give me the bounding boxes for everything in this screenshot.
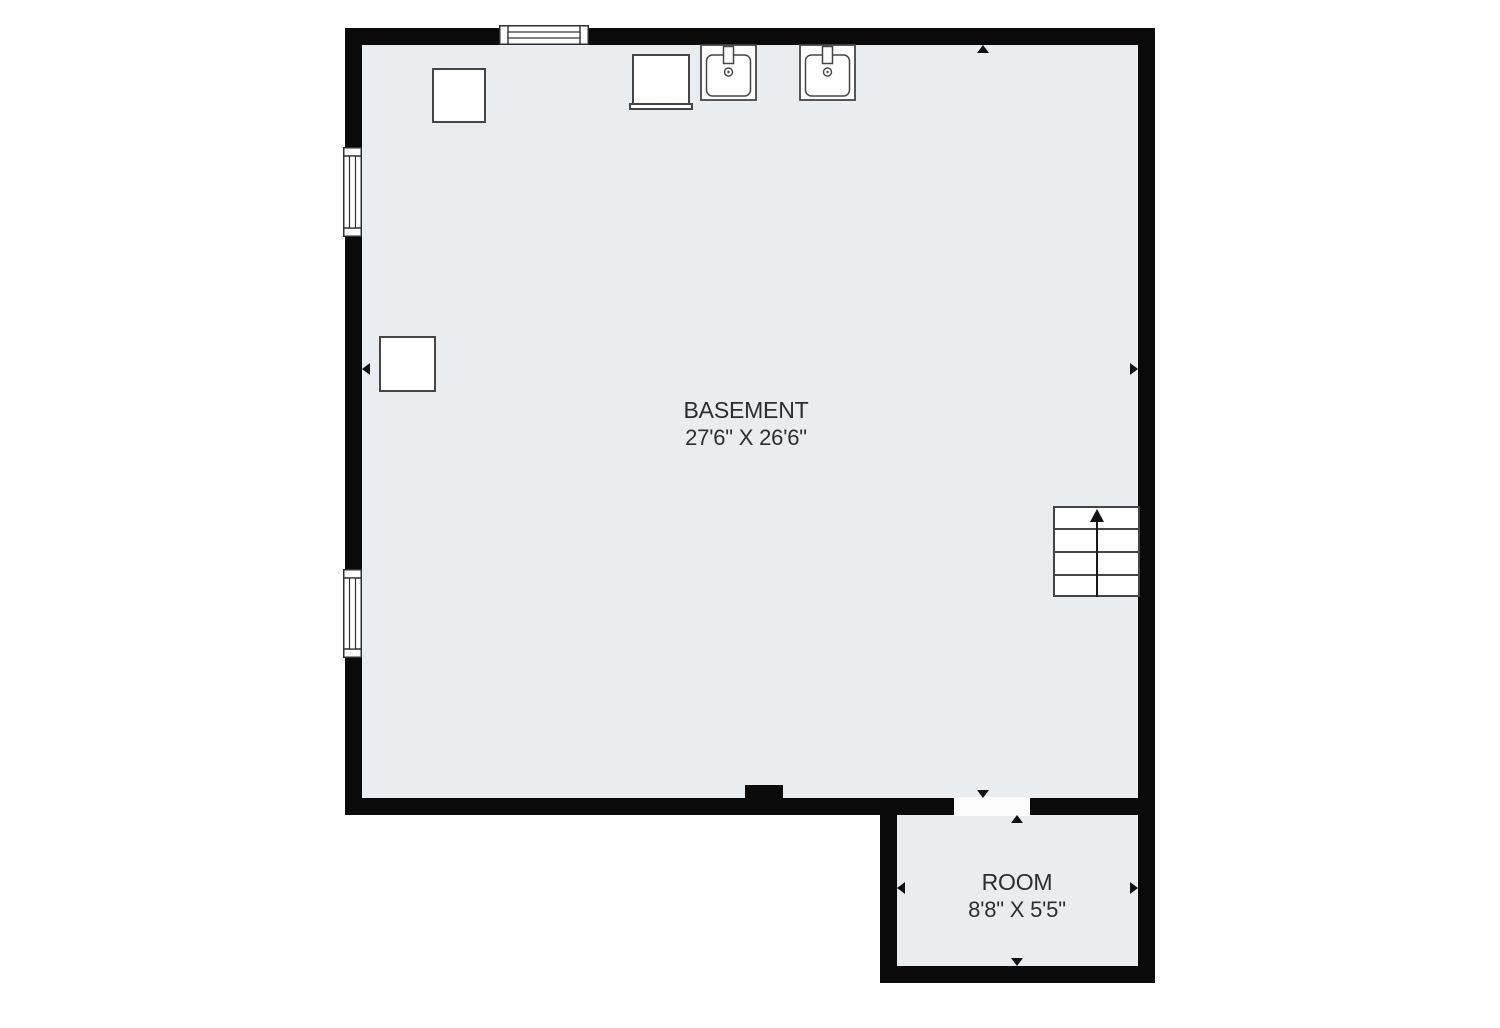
window-glyph bbox=[499, 25, 589, 45]
floor-plan: BASEMENT 27'6" X 26'6" ROOM 8'8" X 5'5" bbox=[0, 0, 1500, 1028]
room-name: ROOM bbox=[968, 868, 1066, 896]
wall-marker-up-icon bbox=[977, 45, 989, 53]
sink-glyph bbox=[799, 44, 856, 101]
door-marker-up-icon bbox=[1011, 815, 1023, 823]
door-opening bbox=[954, 797, 1030, 816]
staircase bbox=[1053, 506, 1140, 597]
wall-marker-right-icon bbox=[1130, 363, 1138, 375]
door-marker-down-icon bbox=[977, 790, 989, 798]
appliance bbox=[632, 54, 690, 106]
window-icon bbox=[499, 25, 589, 45]
room-dimensions: 8'8" X 5'5" bbox=[968, 896, 1066, 923]
window-icon bbox=[343, 147, 362, 237]
window-glyph bbox=[343, 147, 362, 237]
utility-sink-2 bbox=[799, 44, 856, 101]
sink-glyph bbox=[700, 44, 757, 101]
wall-marker-left-icon bbox=[897, 882, 905, 894]
faucet-icon bbox=[724, 47, 734, 64]
basement-label: BASEMENT 27'6" X 26'6" bbox=[684, 396, 809, 451]
room-dimensions: 27'6" X 26'6" bbox=[684, 424, 809, 451]
window-icon bbox=[343, 569, 362, 658]
appliance-front-edge bbox=[629, 103, 693, 110]
stairs-up-arrow-icon bbox=[1090, 509, 1104, 522]
wall-marker-right-icon bbox=[1130, 882, 1138, 894]
drain-dot bbox=[826, 71, 828, 73]
storage-cabinet-top bbox=[432, 68, 486, 123]
wall-column bbox=[745, 785, 783, 799]
room-label: ROOM 8'8" X 5'5" bbox=[968, 868, 1066, 923]
utility-sink-1 bbox=[700, 44, 757, 101]
wall-marker-left-icon bbox=[362, 363, 370, 375]
drain-dot bbox=[727, 71, 729, 73]
storage-cabinet-left bbox=[379, 336, 436, 392]
wall-marker-down-icon bbox=[1011, 958, 1023, 966]
room-name: BASEMENT bbox=[684, 396, 809, 424]
stairs-direction-line bbox=[1096, 520, 1098, 597]
faucet-icon bbox=[823, 47, 833, 64]
window-glyph bbox=[343, 569, 362, 658]
